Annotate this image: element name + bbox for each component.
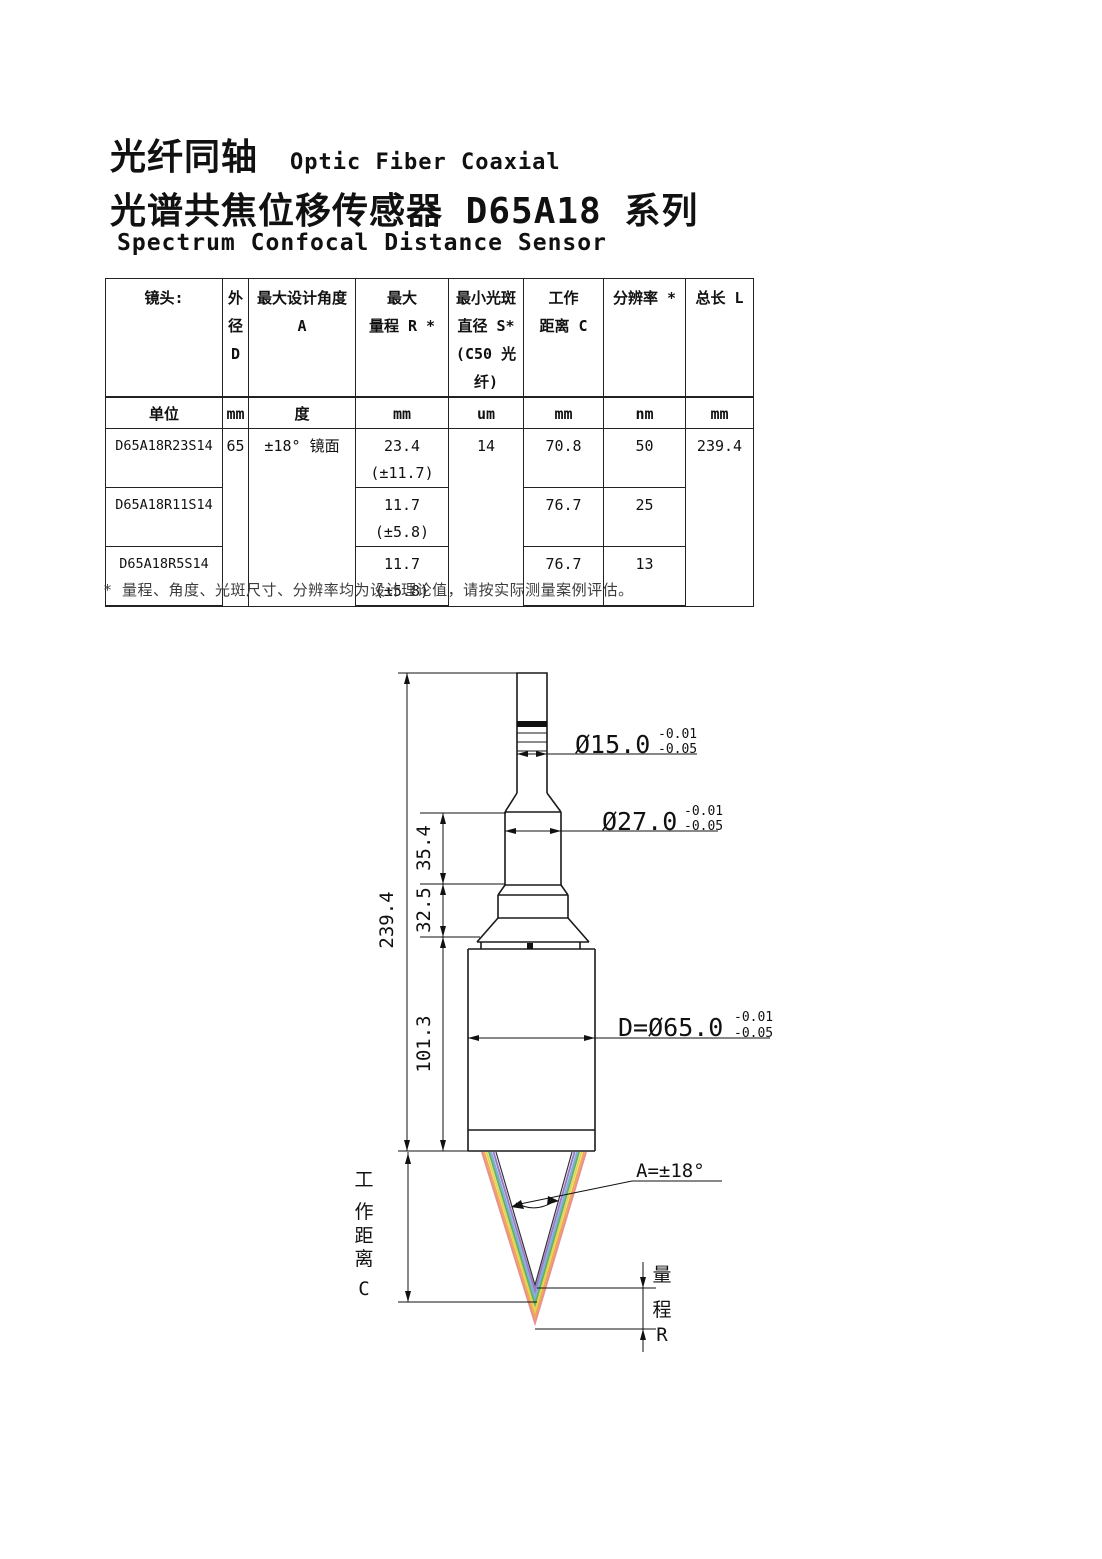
cell-wd-1: 70.8 — [524, 429, 604, 488]
fiber-tol-upper: -0.01 — [658, 727, 697, 742]
cell-model-1: D65A18R23S14 — [106, 429, 223, 488]
dim-neck-diameter: Ø27.0 — [602, 807, 677, 836]
table-row: D65A18R11S14 11.7 (±5.8) 76.7 25 — [106, 488, 754, 547]
cell-wd-2: 76.7 — [524, 488, 604, 547]
cell-len: 239.4 — [686, 429, 754, 607]
neck-tol-upper: -0.01 — [684, 804, 723, 819]
svg-text:作: 作 — [354, 1201, 373, 1223]
connector-band — [517, 721, 547, 727]
working-distance-label: 工 作 距 离 C — [354, 1169, 373, 1300]
dim-seg-mid: 32.5 — [413, 887, 435, 933]
header-range: 最大 量程 R * — [356, 279, 449, 398]
body-tol-upper: -0.01 — [734, 1010, 773, 1025]
cell-model-2: D65A18R11S14 — [106, 488, 223, 547]
title-row-1: 光纤同轴 Optic Fiber Coaxial — [110, 128, 561, 180]
title-chinese-2: 光谱共焦位移传感器 D65A18 系列 — [110, 182, 698, 234]
unit-wd: mm — [524, 397, 604, 429]
unit-spot: um — [449, 397, 524, 429]
dimension-arrows — [404, 673, 646, 1340]
cell-range-1: 23.4 (±11.7) — [356, 429, 449, 488]
header-resolution: 分辨率 * — [604, 279, 686, 398]
svg-text:离: 离 — [354, 1248, 373, 1270]
title-english-2: Spectrum Confocal Distance Sensor — [117, 230, 607, 256]
header-spot: 最小光斑 直径 S* (C50 光纤) — [449, 279, 524, 398]
svg-text:距: 距 — [354, 1225, 373, 1247]
title-chinese-1: 光纤同轴 — [110, 128, 258, 180]
svg-text:程: 程 — [652, 1299, 671, 1321]
table-units-row: 单位 mm 度 mm um mm nm mm — [106, 397, 754, 429]
neck-tol-lower: -0.05 — [684, 819, 723, 834]
range-label: 量 程 R — [652, 1264, 671, 1346]
header-lens: 镜头: — [106, 279, 223, 398]
header-od: 外 径 D — [223, 279, 249, 398]
table-row: D65A18R23S14 65 ±18° 镜面 23.4 (±11.7) 14 … — [106, 429, 754, 488]
datasheet-page: 光纤同轴 Optic Fiber Coaxial 光谱共焦位移传感器 D65A1… — [0, 0, 1102, 1559]
dim-seg-body: 101.3 — [413, 1015, 435, 1072]
unit-angle: 度 — [249, 397, 356, 429]
title-english-1: Optic Fiber Coaxial — [290, 150, 561, 175]
dim-fiber-diameter: Ø15.0 — [575, 730, 650, 759]
sensor-drawing: 239.4 35.4 32.5 101.3 Ø15.0 -0.01 -0.05 … — [340, 650, 800, 1360]
header-total-length: 总长 L — [686, 279, 754, 398]
table-header-row: 镜头: 外 径 D 最大设计角度 A 最大 量程 R * 最小光斑 直径 S* … — [106, 279, 754, 398]
header-working-distance: 工作 距离 C — [524, 279, 604, 398]
cell-res-1: 50 — [604, 429, 686, 488]
body-top-notch — [527, 943, 533, 949]
unit-len: mm — [686, 397, 754, 429]
spectrum-cone — [482, 1152, 586, 1323]
unit-od: mm — [223, 397, 249, 429]
svg-text:C: C — [358, 1278, 369, 1300]
fiber-tol-lower: -0.05 — [658, 742, 697, 757]
angle-label: A=±18° — [636, 1160, 705, 1182]
footnote: * 量程、角度、光斑尺寸、分辨率均为设计理论值，请按实际测量案例评估。 — [103, 579, 634, 600]
body-tol-lower: -0.05 — [734, 1026, 773, 1041]
dim-body-diameter: D=Ø65.0 — [618, 1013, 723, 1042]
svg-text:工: 工 — [354, 1169, 373, 1191]
svg-text:量: 量 — [652, 1264, 671, 1286]
cell-range-2: 11.7 (±5.8) — [356, 488, 449, 547]
unit-res: nm — [604, 397, 686, 429]
dim-seg-top: 35.4 — [413, 825, 435, 871]
unit-range: mm — [356, 397, 449, 429]
dim-total-length: 239.4 — [376, 891, 398, 948]
unit-label: 单位 — [106, 397, 223, 429]
svg-text:R: R — [656, 1324, 668, 1346]
header-angle: 最大设计角度 A — [249, 279, 356, 398]
cell-res-2: 25 — [604, 488, 686, 547]
spec-table: 镜头: 外 径 D 最大设计角度 A 最大 量程 R * 最小光斑 直径 S* … — [105, 278, 754, 607]
